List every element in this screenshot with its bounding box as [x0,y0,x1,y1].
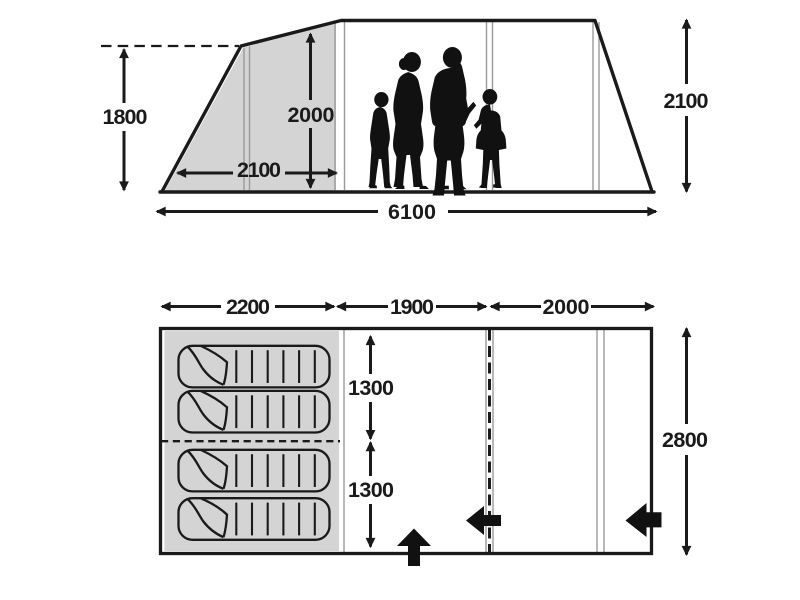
svg-text:1800: 1800 [103,105,148,129]
svg-text:2000: 2000 [543,295,590,319]
svg-text:2100: 2100 [664,89,709,113]
svg-text:2100: 2100 [237,158,281,182]
svg-text:2800: 2800 [662,428,708,452]
svg-text:1300: 1300 [348,376,394,400]
svg-text:1300: 1300 [348,478,394,502]
svg-text:2000: 2000 [288,103,335,127]
svg-text:1900: 1900 [390,295,434,319]
svg-text:6100: 6100 [388,200,436,224]
svg-text:2200: 2200 [226,295,270,319]
